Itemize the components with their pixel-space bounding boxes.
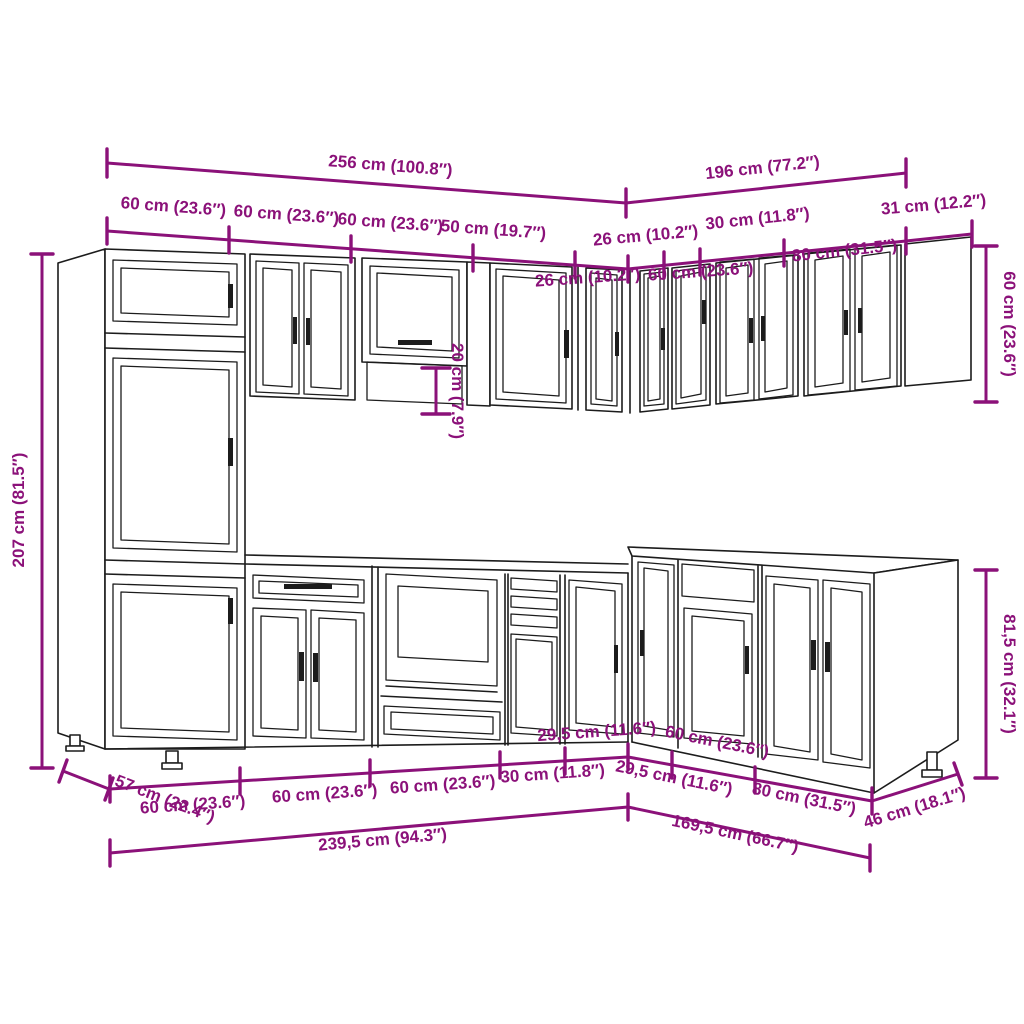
door-handle-icon — [640, 630, 644, 656]
door-handle-icon — [228, 438, 233, 466]
door-handle-icon — [858, 308, 862, 333]
door-handle-icon — [564, 330, 569, 358]
dim-wall-left-2: 60 cm (23.6″) — [233, 201, 340, 228]
door-handle-icon — [749, 318, 753, 343]
door-handle-icon — [614, 645, 618, 673]
door-handle-icon — [228, 598, 233, 624]
dim-top-total-left: 256 cm (100.8″) — [328, 151, 453, 179]
dim-base-left-2: 60 cm (23.6″) — [271, 780, 378, 806]
door-handle-icon — [825, 642, 830, 672]
door-handle-icon — [293, 317, 297, 344]
dim-tall-height: 207 cm (81.5″) — [9, 453, 28, 568]
dim-base-left-5: 29,5 cm (11.6″) — [537, 718, 657, 745]
dim-wall-right-2: 30 cm (11.8″) — [704, 204, 810, 234]
tall-cabinet — [58, 249, 245, 769]
door-handle-icon — [702, 300, 706, 324]
door-handle-icon — [811, 640, 816, 670]
dim-wall-left-1: 60 cm (23.6″) — [120, 193, 227, 220]
wall-cabinet-26-right — [640, 268, 668, 412]
dim-base-right-1: 29,5 cm (11.6″) — [614, 756, 734, 798]
door-handle-icon — [299, 652, 304, 681]
base-cabinet-30-drawers — [511, 578, 557, 736]
dim-top-total-right: 196 cm (77.2″) — [704, 152, 820, 183]
dim-base-right-3: 80 cm (31.5″) — [751, 779, 858, 819]
door-handle-icon — [306, 318, 310, 345]
dim-base-right-2: 60 cm (23.6″) — [664, 722, 771, 762]
dim-niche-height: 20 cm (7.9″) — [448, 343, 467, 439]
wall-cabinet-60-double — [250, 254, 355, 400]
dim-base-left-3: 60 cm (23.6″) — [389, 771, 496, 797]
dim-wall-left-5: 26 cm (10.2″) — [592, 221, 699, 249]
door-handle-icon — [228, 284, 233, 308]
door-handle-icon — [313, 653, 318, 682]
door-handle-icon — [745, 646, 749, 674]
base-cabinet-oven-niche — [381, 574, 502, 740]
dim-bottom-total-right: 169,5 cm (66.7″) — [670, 811, 800, 856]
wall-cabinet-80 — [804, 245, 901, 396]
drawer-handle-icon — [284, 584, 332, 589]
dim-wall-height: 60 cm (23.6″) — [1000, 271, 1019, 376]
dim-wall-left-4: 50 cm (19.7″) — [440, 216, 547, 243]
wall-cabinet-26-left — [578, 267, 630, 413]
dim-base-height: 81,5 cm (32.1″) — [1000, 614, 1019, 734]
wall-end-side-panel — [905, 237, 971, 386]
base-cabinet-29-left — [569, 580, 622, 734]
door-handle-icon — [661, 328, 665, 350]
wall-filler-strip — [467, 262, 490, 406]
base-cabinet-60-sink — [682, 564, 754, 744]
base-end-side-panel — [874, 560, 958, 793]
base-cabinet-80 — [766, 576, 870, 768]
base-cabinet-60-drawer — [253, 575, 364, 740]
dim-wall-left-3: 60 cm (23.6″) — [337, 209, 444, 236]
diagram-canvas: 256 cm (100.8″) 196 cm (77.2″) 60 cm (23… — [0, 0, 1024, 1024]
door-handle-icon — [761, 316, 765, 341]
door-handle-icon — [844, 310, 848, 335]
door-handle-icon — [615, 332, 619, 356]
dim-wall-end-depth: 31 cm (12.2″) — [880, 190, 987, 218]
base-cabinet-29-right — [638, 562, 674, 737]
kitchen-dimension-diagram: 256 cm (100.8″) 196 cm (77.2″) 60 cm (23… — [0, 0, 1024, 1024]
wall-cabinet-30 — [672, 264, 710, 409]
door-handle-icon — [398, 340, 432, 345]
